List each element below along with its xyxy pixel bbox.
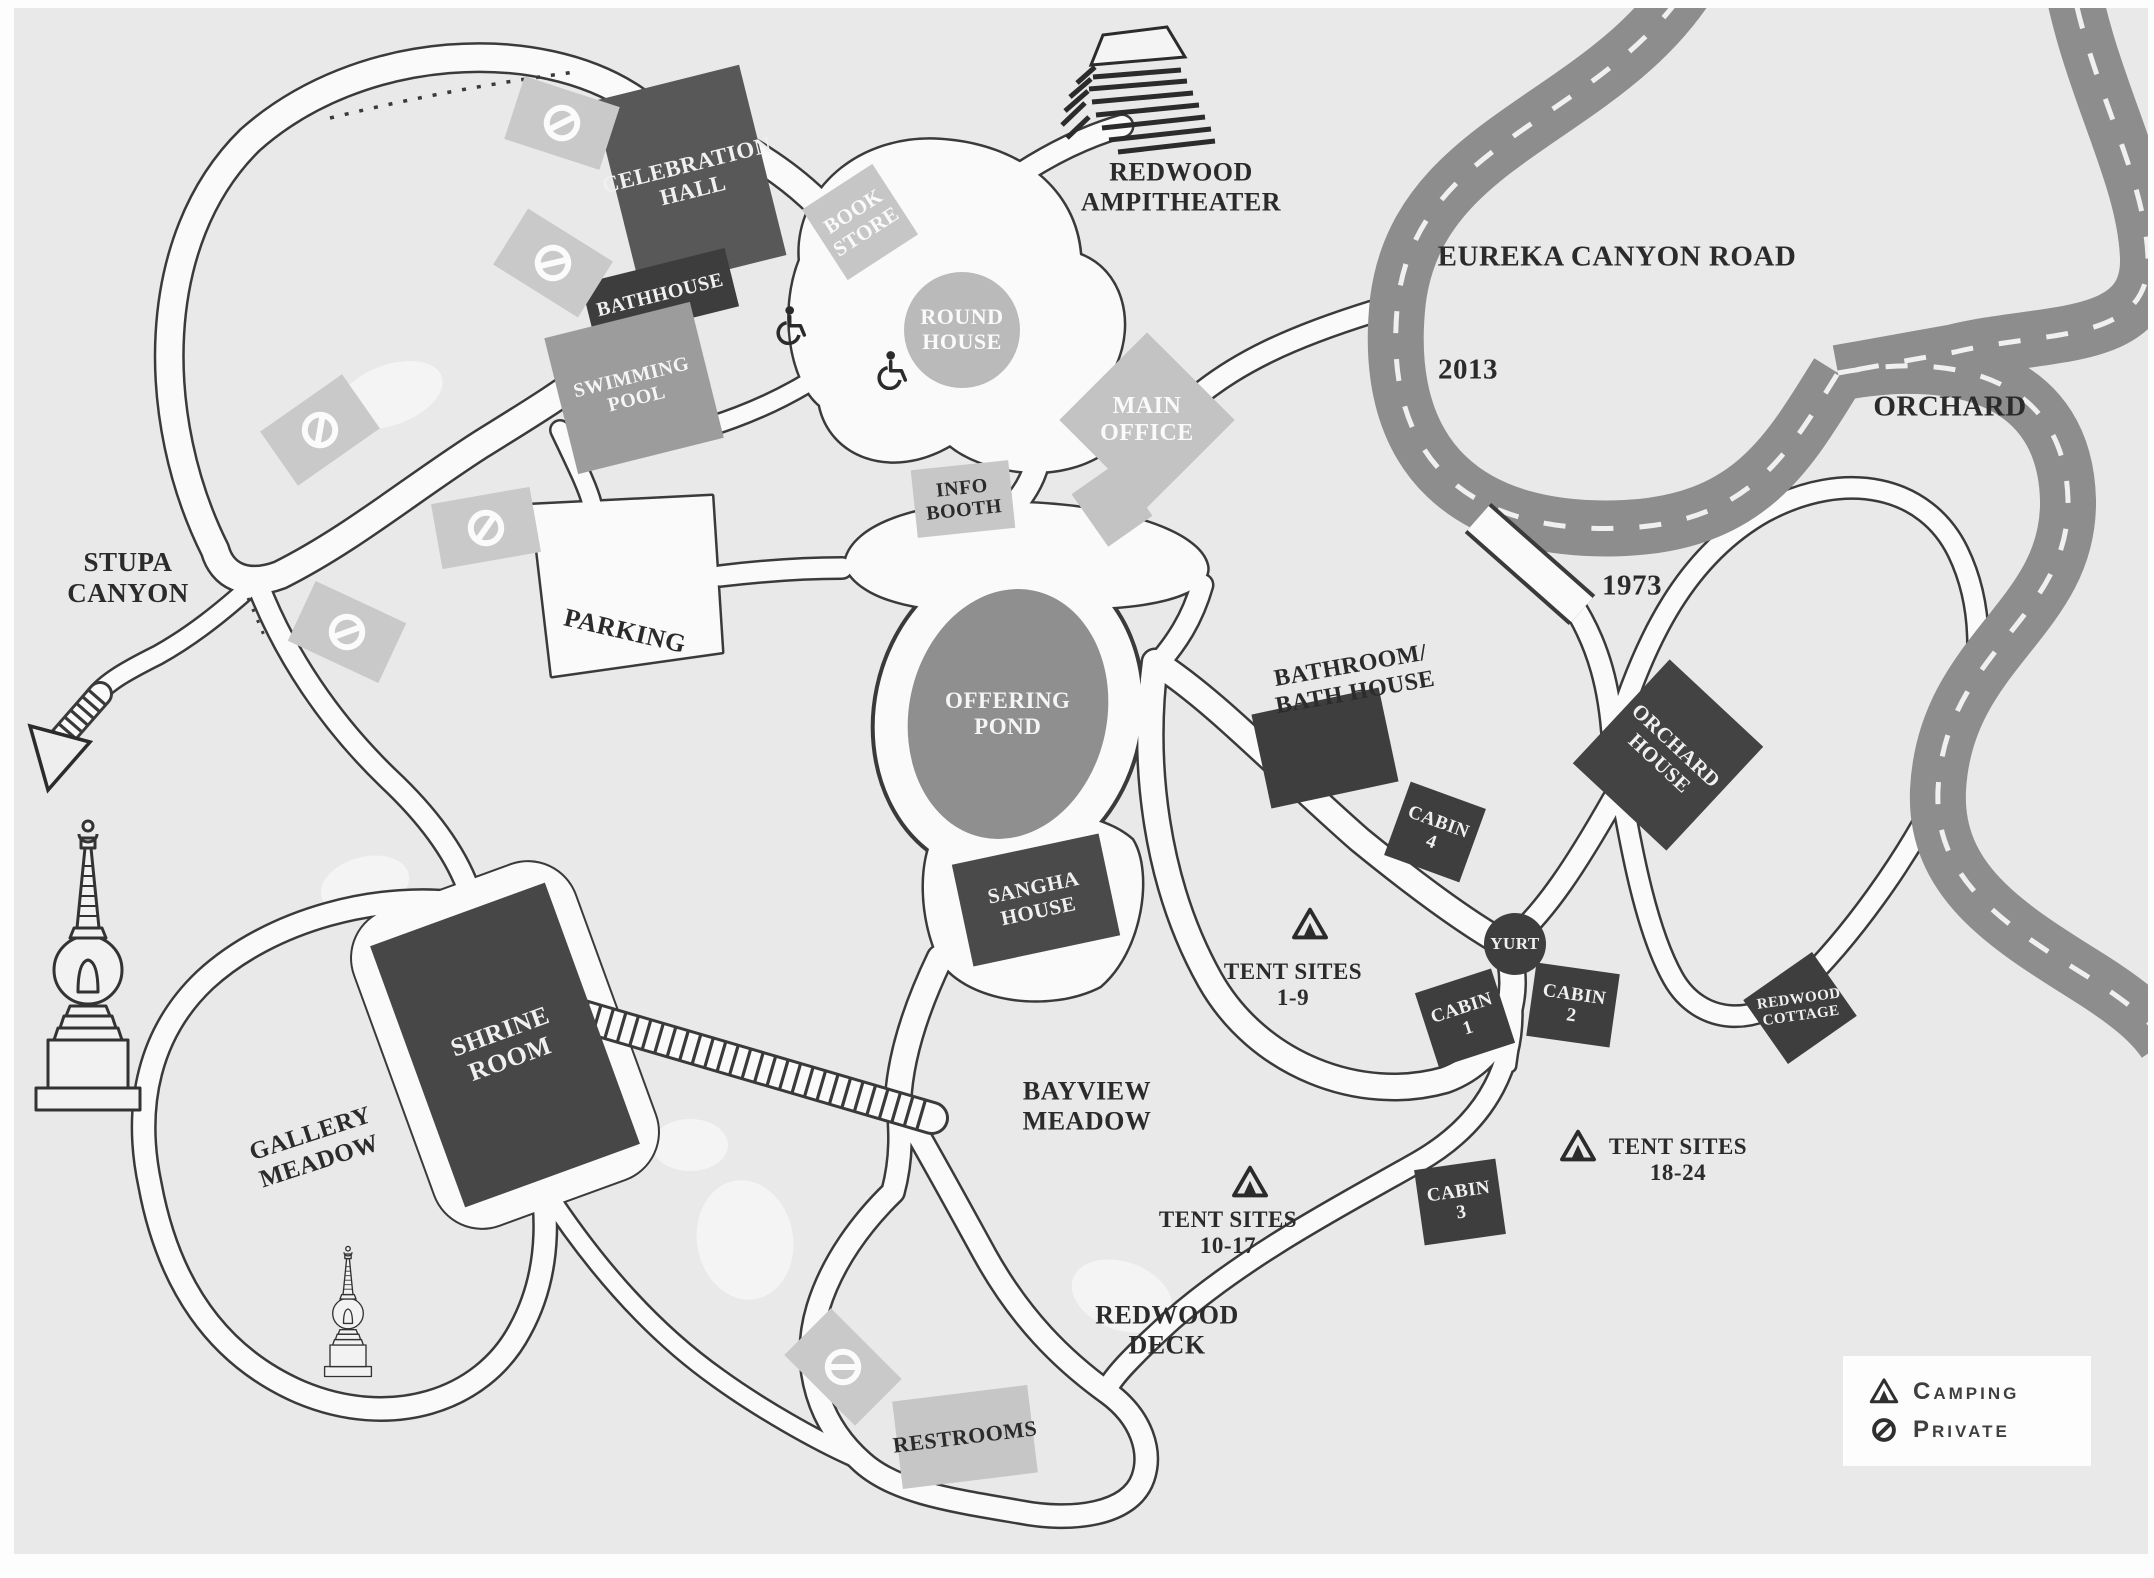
- tent-sites-18-24: TENT SITES18-24: [1609, 1134, 1747, 1186]
- round-house: ROUNDHOUSE: [904, 272, 1020, 388]
- legend-camping-row: Camping: [1869, 1377, 2091, 1407]
- trail-continues-arrow: [30, 726, 90, 790]
- tent-icon: [1559, 1128, 1597, 1166]
- no-entry-icon: [521, 231, 584, 294]
- tent-sites-10-17: TENT SITES10-17: [1159, 1207, 1297, 1259]
- legend-private-row: Private: [1869, 1415, 2091, 1445]
- no-entry-icon: [288, 398, 352, 462]
- tent-icon: [1231, 1164, 1269, 1202]
- no-entry-icon: [533, 94, 591, 152]
- retreat-center-map: Camping Private CELEBRATIONHALLBATHHOUSE…: [0, 0, 2154, 1578]
- legend-private-label: Private: [1913, 1416, 2010, 1444]
- stupa-canyon: STUPACANYON: [67, 547, 189, 609]
- bayview-meadow: BAYVIEWMEADOW: [1023, 1076, 1152, 1135]
- tent-icon: [1291, 906, 1329, 944]
- wheelchair-icon: [772, 305, 812, 345]
- orchard: ORCHARD: [1873, 390, 2026, 423]
- redwood-deck: REDWOODDECK: [1095, 1300, 1239, 1359]
- restrooms: RESTROOMS: [892, 1385, 1038, 1489]
- eureka-canyon-road: EUREKA CANYON ROAD: [1438, 240, 1797, 273]
- legend-camping-label: Camping: [1913, 1378, 2019, 1406]
- page-margin-bottom: [0, 1554, 2154, 1578]
- page-margin-top: [0, 0, 2154, 8]
- wheelchair-icon: [873, 350, 913, 390]
- page-margin-right: [2148, 0, 2154, 1578]
- no-entry-icon: [1869, 1415, 1899, 1445]
- marker-1973: 1973: [1602, 569, 1662, 602]
- small-stupa-drawing: [325, 1246, 372, 1376]
- tent-icon: [1869, 1377, 1899, 1407]
- no-entry-icon: [810, 1334, 875, 1399]
- cabin-3: CABIN3: [1414, 1159, 1506, 1246]
- no-entry-icon: [459, 501, 512, 554]
- marker-2013: 2013: [1438, 353, 1498, 386]
- info-booth: INFOBOOTH: [911, 460, 1016, 538]
- stupa-drawing: [36, 821, 140, 1110]
- no-entry-icon: [316, 601, 377, 662]
- page-margin-left: [0, 0, 14, 1578]
- tent-sites-1-9: TENT SITES1-9: [1224, 959, 1362, 1011]
- legend: Camping Private: [1843, 1356, 2091, 1466]
- redwood-ampitheater: REDWOODAMPITHEATER: [1081, 157, 1281, 216]
- cabin-2: CABIN2: [1526, 963, 1619, 1048]
